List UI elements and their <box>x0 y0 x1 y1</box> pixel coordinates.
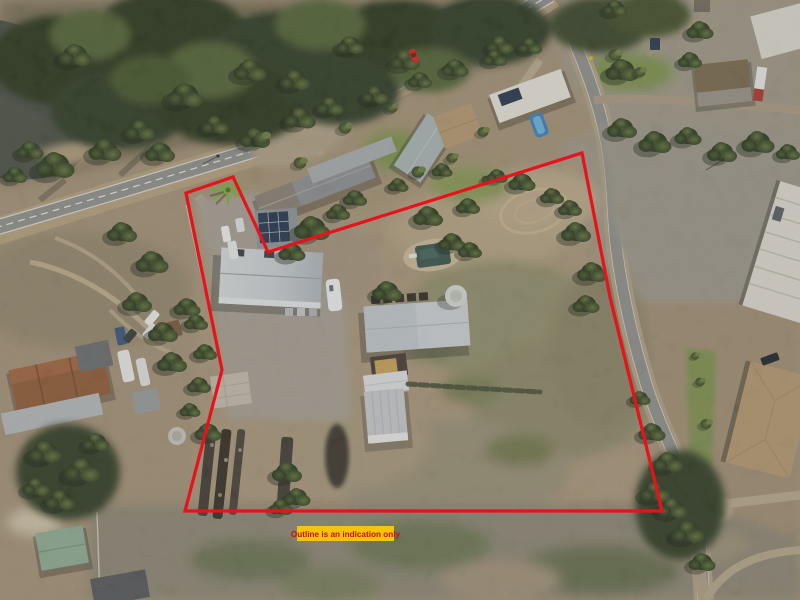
disclaimer-text: Outline is an indication only <box>291 530 401 539</box>
disclaimer-label: Outline is an indication only <box>291 526 401 541</box>
aerial-photo-canvas: Outline is an indication only <box>0 0 800 600</box>
aerial-property-photo: Outline is an indication only <box>0 0 800 600</box>
